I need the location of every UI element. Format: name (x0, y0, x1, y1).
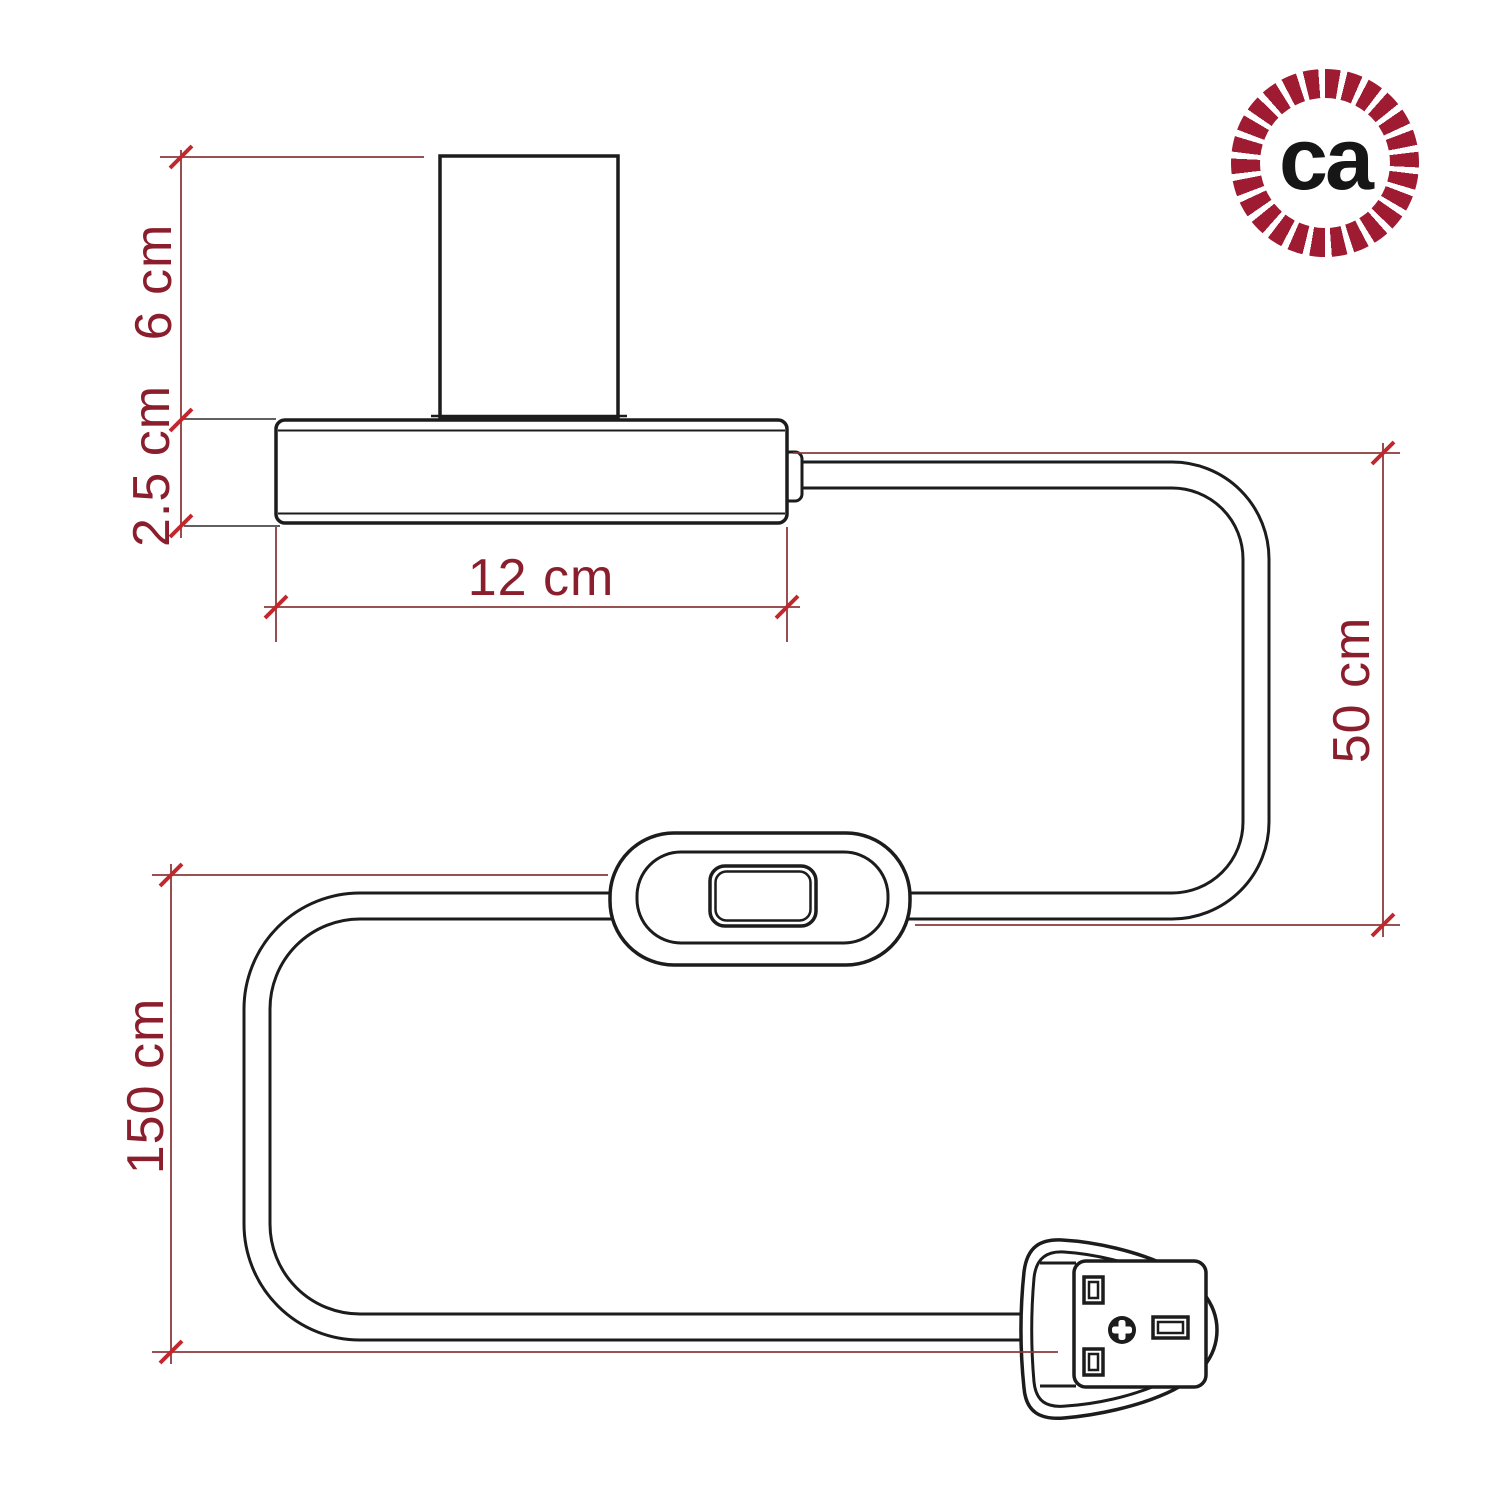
label-upper-cable-length: 50 cm (1322, 617, 1382, 764)
plug-pin-hole-right (1153, 1317, 1188, 1338)
lamp-holder-drawing (431, 156, 627, 417)
plug-screw-icon (1108, 1316, 1136, 1344)
switch-button (710, 866, 816, 926)
creative-cables-logo: ca (1231, 69, 1419, 257)
lamp-base-drawing (276, 420, 802, 523)
plug-pin-hole-bottom (1084, 1349, 1103, 1375)
logo-text: ca (1279, 115, 1371, 211)
label-base-height: 2.5 cm (122, 385, 182, 547)
plug-pin-hole-top (1084, 1277, 1103, 1303)
logo-inner-circle: ca (1260, 98, 1390, 228)
label-base-width: 12 cm (468, 548, 615, 608)
technical-diagram-page: 6 cm 2.5 cm 12 cm 50 cm 150 cm ca (0, 0, 1500, 1500)
label-lamp-holder-height: 6 cm (124, 224, 184, 341)
uk-plug-drawing (1021, 1240, 1217, 1418)
label-lower-cable-length: 150 cm (116, 998, 176, 1175)
inline-switch-drawing (610, 833, 910, 965)
